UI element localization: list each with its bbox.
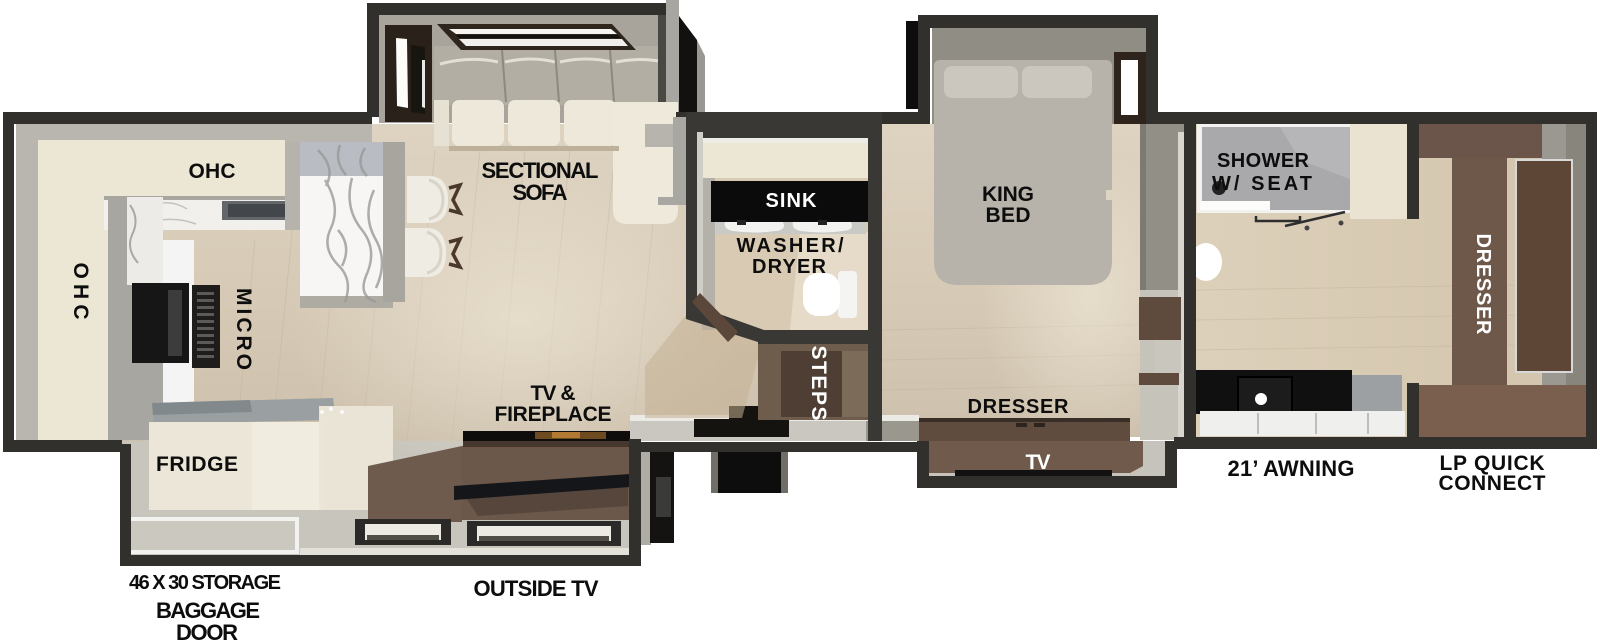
svg-text:FIREPLACE: FIREPLACE (495, 403, 612, 426)
svg-text:STEPS: STEPS (807, 346, 830, 421)
svg-text:MICRO: MICRO (232, 288, 255, 370)
svg-text:SHOWER: SHOWER (1217, 150, 1310, 172)
svg-text:CONNECT: CONNECT (1439, 472, 1546, 495)
svg-text:DOOR: DOOR (176, 620, 238, 644)
svg-text:OHC: OHC (69, 263, 92, 320)
svg-text:DRESSER: DRESSER (1472, 234, 1494, 336)
svg-text:21’ AWNING: 21’ AWNING (1228, 456, 1355, 481)
svg-text:TV: TV (1026, 451, 1051, 474)
svg-text:KING: KING (982, 183, 1034, 206)
svg-text:WASHER/: WASHER/ (737, 235, 844, 257)
svg-text:BED: BED (986, 204, 1031, 227)
svg-text:OUTSIDE TV: OUTSIDE TV (474, 576, 599, 601)
svg-text:46 X 30 STORAGE: 46 X 30 STORAGE (129, 572, 281, 594)
svg-text:OHC: OHC (189, 160, 236, 183)
svg-text:DRYER: DRYER (752, 256, 827, 278)
svg-text:SINK: SINK (766, 190, 818, 212)
svg-text:SOFA: SOFA (513, 180, 568, 205)
svg-text:TV &: TV & (531, 382, 576, 405)
svg-text:FRIDGE: FRIDGE (156, 453, 238, 476)
svg-text:DRESSER: DRESSER (968, 396, 1070, 418)
